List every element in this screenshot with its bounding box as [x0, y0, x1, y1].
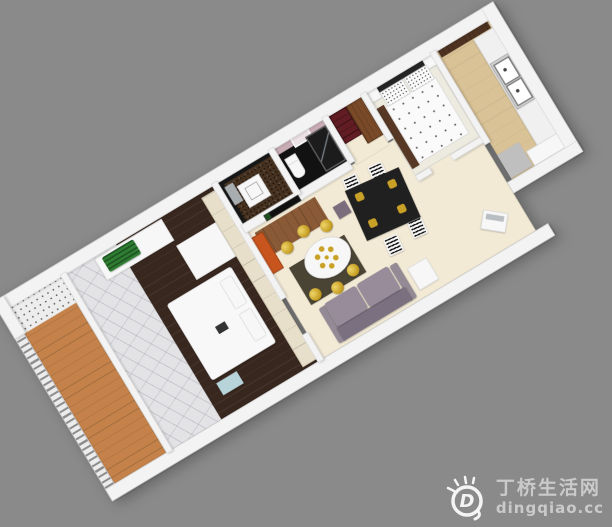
sink-drain: [503, 67, 508, 72]
laptop-on-bed: [215, 321, 229, 334]
floorplan-render: D 丁桥生活网 dingqiao.cc: [0, 0, 612, 527]
watermark-site-name: 丁桥生活网: [496, 478, 604, 500]
watermark-logo: D: [444, 475, 490, 521]
appliance-door: [244, 181, 263, 200]
watermark-text: 丁桥生活网 dingqiao.cc: [496, 478, 604, 517]
logo-letter: D: [459, 491, 474, 512]
sink-drain: [515, 88, 520, 93]
watermark: D 丁桥生活网 dingqiao.cc: [444, 475, 604, 521]
gold-plate: [396, 203, 407, 214]
apartment-3d-scene: [8, 18, 596, 486]
laptop-screen: [486, 214, 505, 222]
watermark-site-url: dingqiao.cc: [496, 500, 604, 517]
gold-plate: [367, 218, 378, 229]
gold-plate: [354, 191, 365, 202]
gold-plate: [387, 178, 398, 189]
white-laptop: [480, 210, 508, 233]
